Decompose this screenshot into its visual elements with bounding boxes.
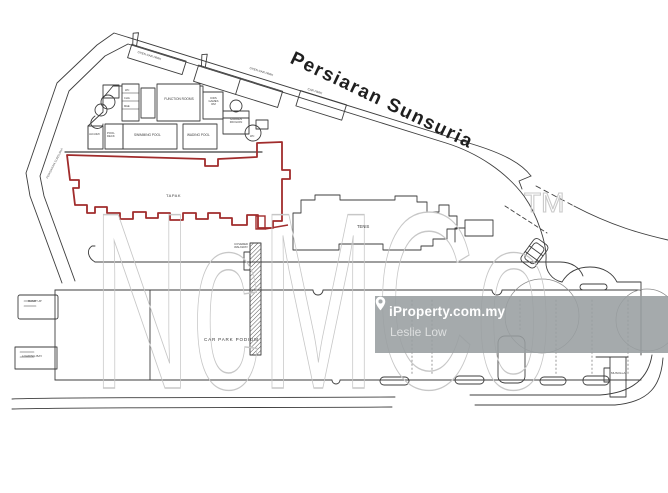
iproperty-brand-text: iProperty.com.my <box>389 304 505 319</box>
kids-room-label: KIDS GAMES RM <box>206 97 221 107</box>
swimming-pool-label: SWIMMING POOL <box>134 134 161 138</box>
changing-label-3: M&E <box>124 106 130 109</box>
wading-pool-label: WADING POOL <box>187 134 210 138</box>
car-park-podium-label: CAR PARK PODIUM <box>204 337 259 342</box>
map-pin-icon <box>375 296 386 311</box>
small-building-outline <box>596 357 628 397</box>
covered-walkway-label: COVERED WALKWAY <box>231 243 248 249</box>
changing-label-2: CHG <box>124 98 130 101</box>
ramp-label: RAMP UP <box>28 300 42 303</box>
loading-label: LOADING BAY <box>22 355 42 358</box>
function-rooms-label: FUNCTION ROOMS <box>162 98 196 102</box>
wc-label: WC <box>250 136 254 139</box>
site-plan-image: NcMCo TM Persiaran Sunsuria PERSIARAN SU… <box>0 0 668 493</box>
musolla-label: MUSOLLA <box>611 372 625 375</box>
iproperty-watermark: iProperty.com.my Leslie Low <box>375 296 668 353</box>
site-label: TAPAK <box>166 194 181 199</box>
garden-pavilion-label: GARDEN PAVILION <box>226 118 246 124</box>
trademark-symbol: TM <box>524 187 564 218</box>
agent-name-text: Leslie Low <box>390 325 668 339</box>
changing-label-1: WC <box>125 90 129 93</box>
pool-deck-label: POOL DECK <box>107 132 121 138</box>
tennis-label: TENIS <box>357 225 369 230</box>
jacuzzi-label: JACUZZI <box>89 134 100 137</box>
